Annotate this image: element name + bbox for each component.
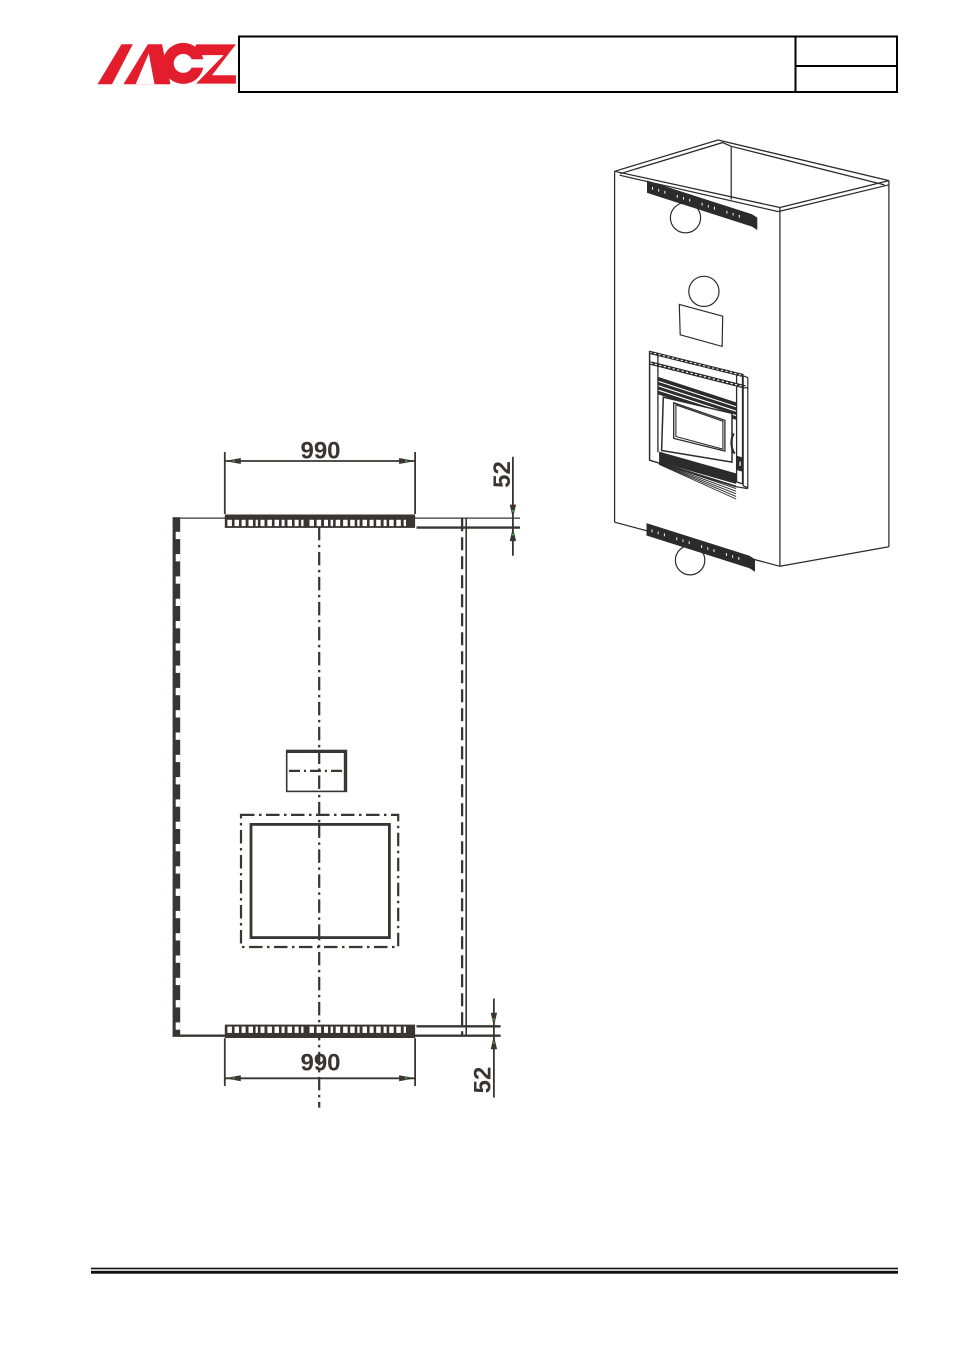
svg-text:990: 990 [300, 1050, 340, 1077]
svg-text:52: 52 [470, 1067, 497, 1094]
svg-text:52: 52 [489, 461, 516, 488]
svg-text:990: 990 [300, 437, 340, 464]
